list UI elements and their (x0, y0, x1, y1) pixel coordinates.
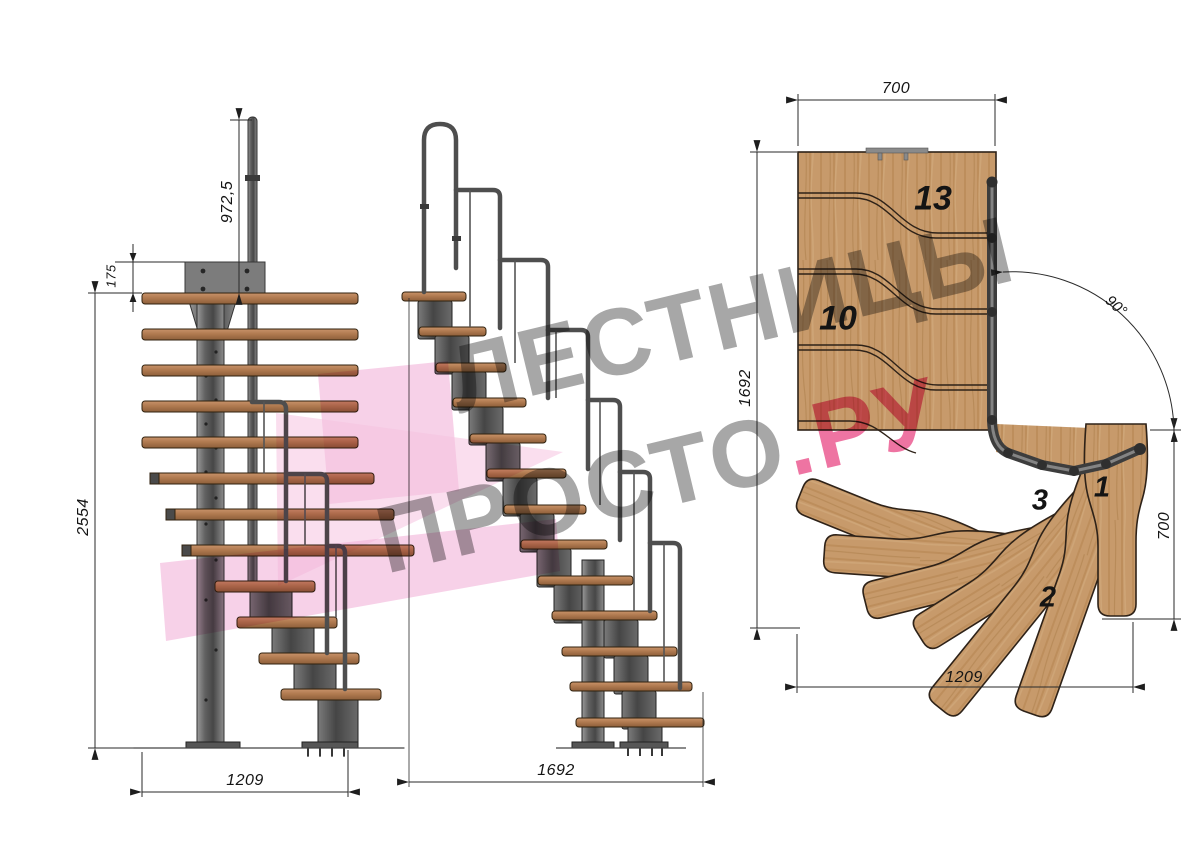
step-number-2: 2 (1040, 582, 1056, 615)
dim-label-plan-entry-width: 700 (1156, 512, 1174, 540)
dim-label-top-offset: 175 (104, 264, 119, 287)
brand-logo (0, 0, 1200, 849)
dim-label-handrail-height: 972,5 (219, 181, 237, 224)
dim-label-plan-side-length: 1692 (737, 369, 755, 407)
dim-label-plan-top-width: 700 (882, 80, 910, 98)
dim-label-side-width: 1209 (226, 772, 264, 790)
step-number-3: 3 (1032, 485, 1048, 518)
step-number-13: 13 (914, 180, 952, 219)
step-number-1: 1 (1094, 472, 1110, 505)
dim-label-front-length: 1692 (537, 762, 575, 780)
dim-label-total-height: 2554 (75, 498, 93, 536)
step-number-10: 10 (819, 300, 857, 339)
staircase-drawing-page: ЛЕСТНИЦЫ ПРОСТО.РУ 972,5 175 2554 1209 1… (0, 0, 1200, 849)
dim-label-plan-bottom-length: 1209 (945, 669, 983, 687)
